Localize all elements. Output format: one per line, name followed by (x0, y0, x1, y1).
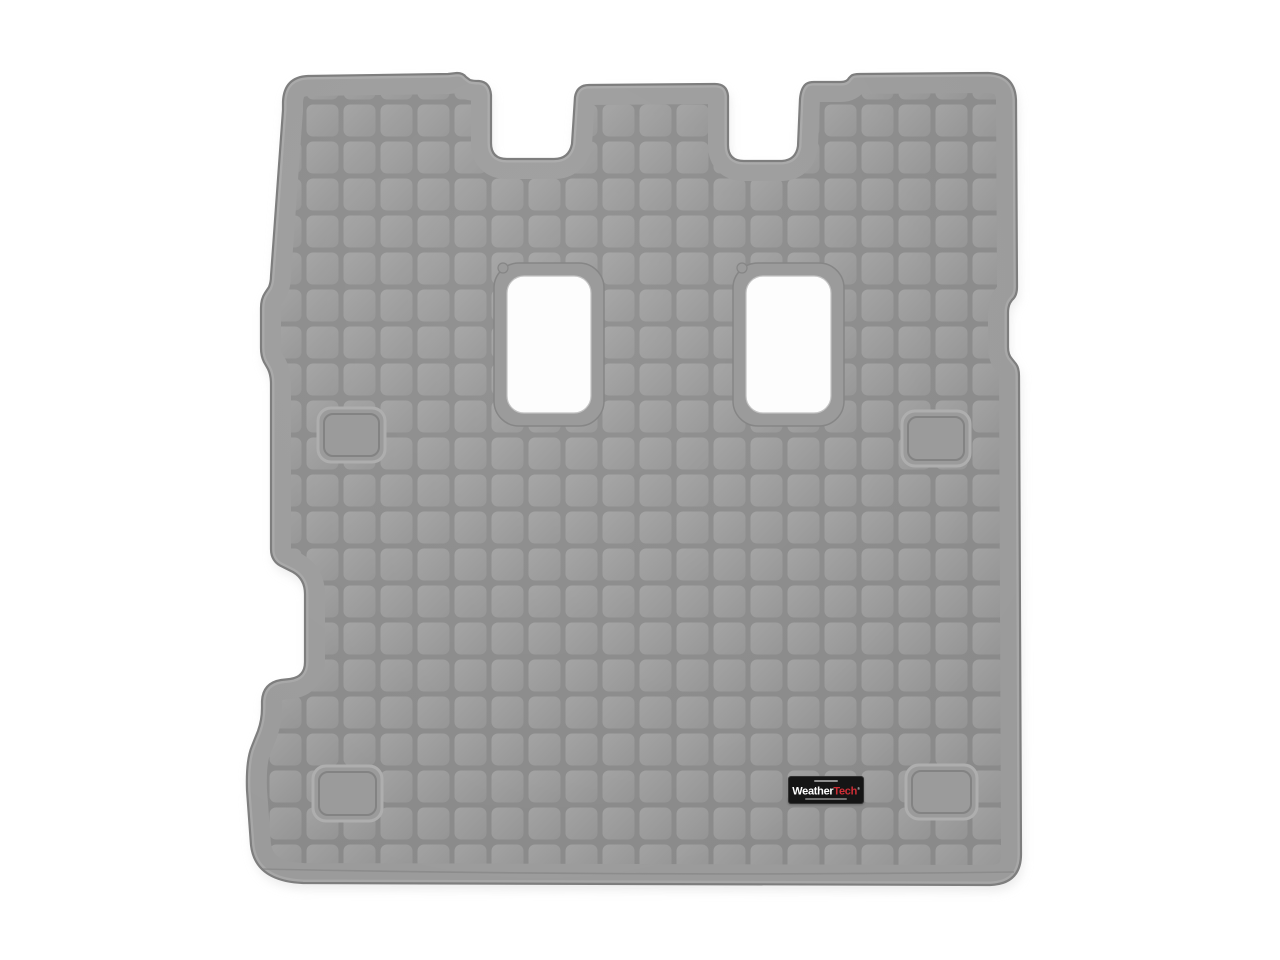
badge-brand-tech: Tech (833, 785, 857, 797)
cutout-nub-left (498, 263, 508, 273)
retention-pad-bottom-right (906, 765, 977, 819)
seat-anchor-cutout-left (494, 263, 604, 426)
weathertech-badge: WeatherTech® (788, 776, 864, 804)
badge-fine-print-bottom (805, 798, 847, 800)
badge-brand-weather: Weather (792, 785, 833, 797)
badge-fine-print-top (814, 780, 838, 782)
badge-registered-mark: ® (857, 786, 860, 791)
cargo-liner-illustration (0, 0, 1280, 960)
seat-anchor-cutout-right (733, 263, 844, 426)
retention-pad-mid-right (902, 411, 970, 466)
cutout-nub-right (737, 263, 747, 273)
cutout-opening-right (746, 276, 831, 413)
badge-brand: WeatherTech® (792, 783, 859, 798)
retention-pad-mid-left (318, 408, 385, 462)
cutout-opening-left (507, 276, 591, 413)
retention-pad-bottom-left (313, 766, 382, 821)
product-photo: WeatherTech® (0, 0, 1280, 960)
